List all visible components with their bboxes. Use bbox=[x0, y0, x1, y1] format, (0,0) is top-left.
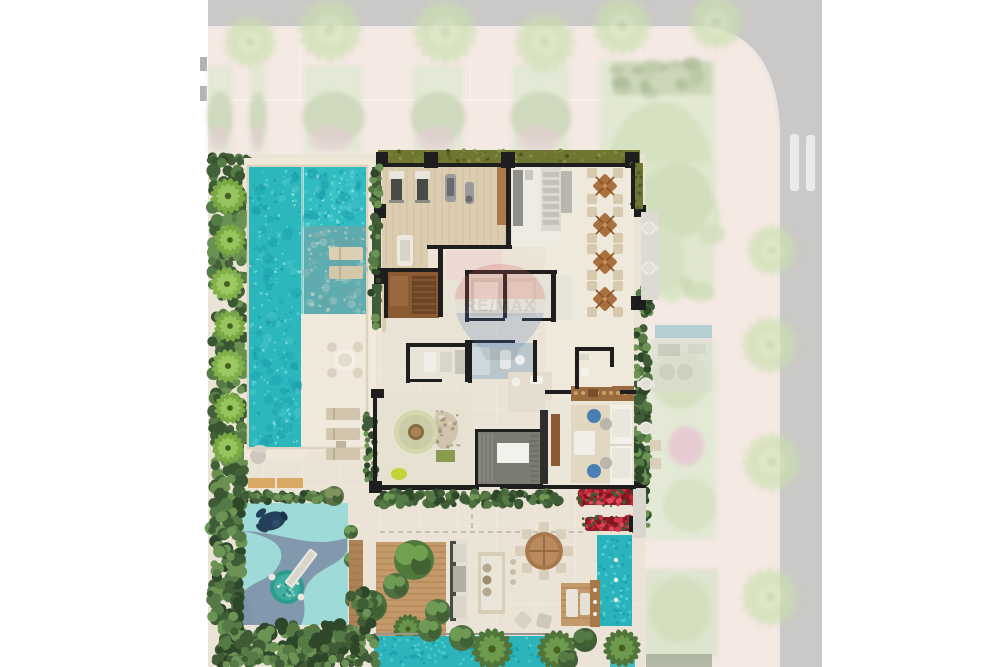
svg-text:RE/MAX: RE/MAX bbox=[464, 296, 536, 315]
